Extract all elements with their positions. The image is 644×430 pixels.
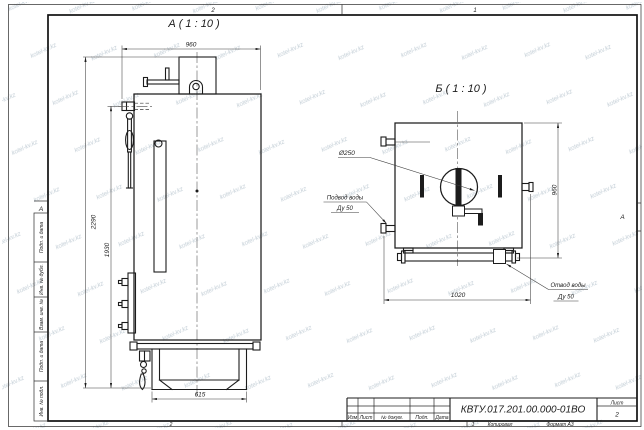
zone-marker-top-right: 1 xyxy=(473,8,476,14)
sidebar-field-label: Подп. и дата xyxy=(39,222,45,254)
dim-text-2290: 2290 xyxy=(91,214,98,230)
door-handle-right xyxy=(499,176,502,198)
sidebar-field-label: Инв. № дубл. xyxy=(39,264,45,295)
titleblock-col-label: Изм xyxy=(348,415,358,421)
dim-text-1930: 1930 xyxy=(104,242,111,257)
document-designation: КВТУ.017.201.00.000-01ВО xyxy=(461,405,586,416)
damper-arm xyxy=(465,209,483,214)
front-center-dot xyxy=(196,190,199,193)
zone-marker-row-right: А xyxy=(619,214,624,221)
drawing-canvas: kotel-kv.kz kotel-kv.kz 2 1 2 1 А А Копи… xyxy=(0,0,644,430)
inlet-label-line2: Ду 50 xyxy=(336,206,353,212)
outlet-connection-block xyxy=(494,250,506,264)
titleblock-col-label: Подп. xyxy=(415,415,428,421)
titleblock-col-label: Лист xyxy=(359,415,373,421)
sheet-label: Лист xyxy=(610,401,624,407)
outlet-label-line2: Ду 50 xyxy=(557,295,574,301)
titleblock-col-label: № докум. xyxy=(381,415,403,421)
sidebar-field-label: Подп. и дата xyxy=(39,341,45,373)
zone-marker-bottom-left: 2 xyxy=(169,422,173,428)
zone-marker-row-left: А xyxy=(38,206,43,213)
front-view-label: А ( 1 : 10 ) xyxy=(167,18,220,30)
flue-diameter-text: Ø250 xyxy=(338,150,355,157)
flue-pipe-bar xyxy=(456,169,461,207)
watermark-layer xyxy=(2,2,642,428)
copied-label: Копировал xyxy=(488,422,513,428)
drawing-sheet: kotel-kv.kz kotel-kv.kz 2 1 2 1 А А Копи… xyxy=(0,0,644,430)
dim-text-615: 615 xyxy=(195,392,206,399)
damper-handle xyxy=(479,214,483,226)
dim-text-960-side: 960 xyxy=(552,184,559,195)
sheet-number: 2 xyxy=(614,412,619,419)
outlet-label-line1: Отвод воды xyxy=(550,283,586,289)
sidebar-field-label: Инв. № подл. xyxy=(39,385,45,416)
zone-marker-bottom-right: 1 xyxy=(472,422,475,428)
sidebar-field-label: Взам. инв. № xyxy=(39,298,45,330)
titleblock-col-label: Дата xyxy=(434,415,448,421)
door-handle-left xyxy=(421,176,424,198)
inlet-label-line1: Подвод воды xyxy=(327,196,364,202)
flue-pipe-base xyxy=(453,206,465,216)
format-label: Формат А3 xyxy=(546,422,574,428)
side-view-label: Б ( 1 : 10 ) xyxy=(435,83,487,95)
dim-text-1020: 1020 xyxy=(451,292,466,299)
zone-marker-top-left: 2 xyxy=(210,8,215,14)
dim-text-960-top: 960 xyxy=(186,42,197,49)
